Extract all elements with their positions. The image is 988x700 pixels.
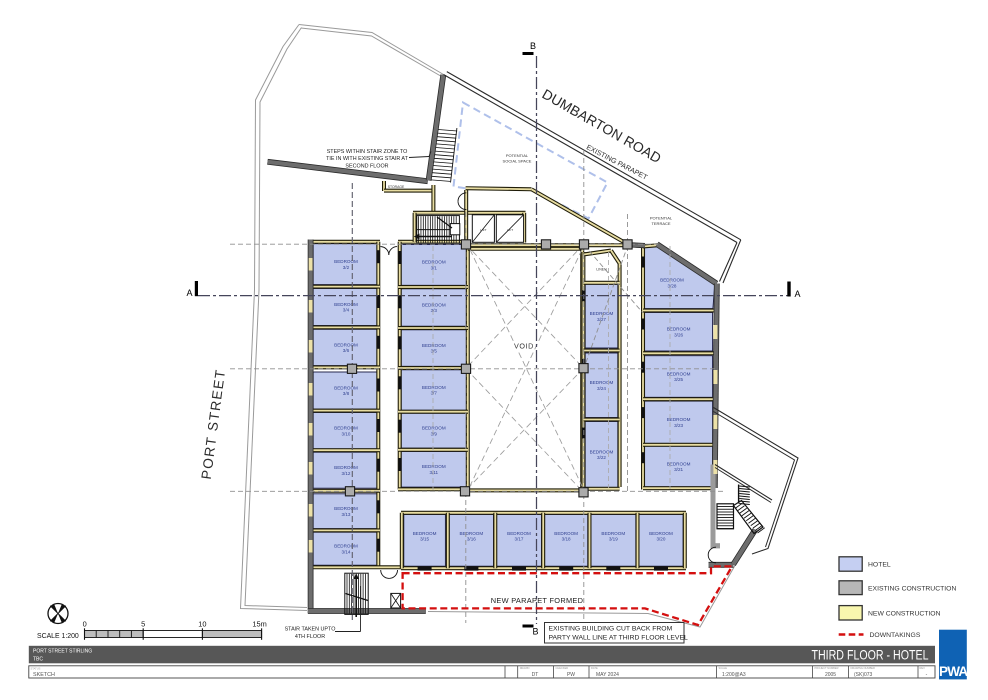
svg-text:HOTEL: HOTEL (868, 562, 891, 569)
svg-text:3/14: 3/14 (342, 549, 351, 554)
svg-text:BEDROOM: BEDROOM (422, 260, 446, 265)
svg-text:3/7: 3/7 (431, 391, 438, 396)
svg-text:3/21: 3/21 (674, 467, 683, 472)
svg-text:PROJECT NUMBER: PROJECT NUMBER (815, 666, 839, 670)
svg-text:SOCIAL SPACE: SOCIAL SPACE (503, 159, 532, 164)
svg-text:SCALE 1:200: SCALE 1:200 (37, 633, 79, 640)
svg-text:DATE: DATE (591, 666, 598, 670)
svg-text:3/6: 3/6 (343, 348, 350, 353)
svg-text:3/25: 3/25 (674, 377, 683, 382)
svg-text:LIFT: LIFT (507, 228, 513, 232)
svg-text:PW: PW (567, 672, 575, 678)
svg-text:NEW CONSTRUCTION: NEW CONSTRUCTION (868, 610, 941, 617)
svg-text:REV: REV (920, 666, 926, 670)
svg-text:PORT STREET STIRLING: PORT STREET STIRLING (33, 648, 92, 654)
svg-text:BEDROOM: BEDROOM (422, 302, 446, 307)
svg-text:A: A (186, 288, 192, 298)
svg-text:3/23: 3/23 (674, 423, 683, 428)
svg-text:3/12: 3/12 (342, 471, 351, 476)
svg-text:STORAGE: STORAGE (388, 185, 405, 189)
svg-text:3/2: 3/2 (343, 265, 350, 270)
svg-text:BEDROOM: BEDROOM (601, 531, 625, 536)
svg-text:SECOND FLOOR: SECOND FLOOR (345, 163, 388, 169)
svg-text:BEDROOM: BEDROOM (649, 531, 673, 536)
svg-text:3/3: 3/3 (431, 308, 438, 313)
svg-text:STAIR TAKEN UPTO: STAIR TAKEN UPTO (285, 627, 336, 633)
svg-text:B: B (530, 41, 536, 51)
svg-text:TBC: TBC (33, 657, 43, 663)
svg-text:0: 0 (83, 620, 87, 629)
svg-text:BEDROOM: BEDROOM (459, 531, 483, 536)
svg-text:BEDROOM: BEDROOM (422, 464, 446, 469)
svg-text:3/26: 3/26 (674, 332, 683, 337)
svg-text:A: A (794, 289, 800, 299)
svg-text:VOID: VOID (514, 342, 534, 351)
svg-text:3/1: 3/1 (431, 266, 438, 271)
svg-text:BEDROOM: BEDROOM (334, 544, 358, 549)
svg-text:DT: DT (532, 672, 539, 678)
svg-text:3/9: 3/9 (431, 431, 438, 436)
svg-text:SKETCH: SKETCH (33, 672, 55, 678)
svg-text:LIFT: LIFT (480, 228, 486, 232)
svg-text:DRAWING NUMBER: DRAWING NUMBER (851, 666, 876, 670)
svg-text:BEDROOM: BEDROOM (334, 342, 358, 347)
svg-text:CHECKED: CHECKED (556, 666, 569, 670)
svg-text:3/17: 3/17 (515, 537, 524, 542)
svg-text:BEDROOM: BEDROOM (590, 449, 614, 454)
svg-text:POTENTIAL: POTENTIAL (506, 153, 529, 158)
svg-text:STEPS WITHIN STAIR ZONE TO: STEPS WITHIN STAIR ZONE TO (327, 149, 408, 155)
svg-text:3/28: 3/28 (668, 283, 677, 288)
svg-text:LINEN: LINEN (596, 268, 607, 272)
svg-text:3/22: 3/22 (597, 455, 606, 460)
svg-text:BEDROOM: BEDROOM (334, 385, 358, 390)
svg-text:2005: 2005 (825, 672, 836, 678)
svg-text:3/16: 3/16 (467, 537, 476, 542)
svg-text:EXISTING CONSTRUCTION: EXISTING CONSTRUCTION (868, 585, 956, 592)
svg-text:POTENTIAL: POTENTIAL (650, 216, 673, 221)
svg-text:3/5: 3/5 (431, 349, 438, 354)
svg-text:3/20: 3/20 (656, 537, 665, 542)
svg-text:BEDROOM: BEDROOM (507, 531, 531, 536)
svg-text:STATUS: STATUS (31, 666, 41, 670)
svg-text:1:200@A3: 1:200@A3 (722, 672, 746, 678)
svg-text:DRAWN: DRAWN (520, 666, 530, 670)
svg-text:PWA: PWA (939, 664, 968, 679)
svg-text:SCALE: SCALE (719, 666, 728, 670)
svg-text:DOWNTAKINGS: DOWNTAKINGS (870, 632, 921, 639)
svg-text:TERRACE: TERRACE (651, 221, 670, 226)
svg-text:PARTY WALL LINE AT THIRD FLOOR: PARTY WALL LINE AT THIRD FLOOR LEVEL (549, 635, 688, 642)
svg-text:BEDROOM: BEDROOM (334, 506, 358, 511)
svg-text:3/24: 3/24 (597, 386, 606, 391)
svg-text:3/13: 3/13 (342, 512, 351, 517)
svg-text:NEW PARAPET FORMED: NEW PARAPET FORMED (491, 596, 584, 605)
svg-text:BEDROOM: BEDROOM (590, 311, 614, 316)
svg-text:EXISTING BUILDING CUT BACK FRO: EXISTING BUILDING CUT BACK FROM (549, 626, 673, 633)
svg-text:BEDROOM: BEDROOM (590, 380, 614, 385)
svg-text:BEDROOM: BEDROOM (422, 385, 446, 390)
svg-text:BEDROOM: BEDROOM (554, 531, 578, 536)
svg-text:BEDROOM: BEDROOM (660, 278, 684, 283)
svg-text:BEDROOM: BEDROOM (334, 302, 358, 307)
svg-text:BEDROOM: BEDROOM (334, 465, 358, 470)
svg-text:3/8: 3/8 (343, 391, 350, 396)
svg-text:3/10: 3/10 (342, 431, 351, 436)
svg-text:3/11: 3/11 (429, 470, 438, 475)
svg-text:5: 5 (141, 620, 145, 629)
svg-text:3/18: 3/18 (562, 537, 571, 542)
svg-text:BEDROOM: BEDROOM (334, 425, 358, 430)
svg-text:BEDROOM: BEDROOM (422, 425, 446, 430)
svg-text:3/15: 3/15 (420, 537, 429, 542)
svg-text:BEDROOM: BEDROOM (422, 343, 446, 348)
svg-text:4TH FLOOR: 4TH FLOOR (295, 634, 325, 640)
svg-text:MAY 2024: MAY 2024 (596, 672, 619, 678)
svg-text:TIE IN WITH EXISTING STAIR AT: TIE IN WITH EXISTING STAIR AT (326, 156, 409, 162)
svg-text:BEDROOM: BEDROOM (413, 531, 437, 536)
svg-text:THIRD FLOOR - HOTEL: THIRD FLOOR - HOTEL (812, 648, 929, 663)
svg-text:B: B (532, 627, 538, 637)
svg-text:10: 10 (198, 620, 206, 629)
svg-text:15m: 15m (252, 620, 266, 629)
svg-text:3/27: 3/27 (597, 317, 606, 322)
svg-text:(SK)073: (SK)073 (854, 672, 873, 678)
svg-text:BEDROOM: BEDROOM (334, 259, 358, 264)
svg-text:3/4: 3/4 (343, 308, 350, 313)
svg-text:3/19: 3/19 (609, 537, 618, 542)
